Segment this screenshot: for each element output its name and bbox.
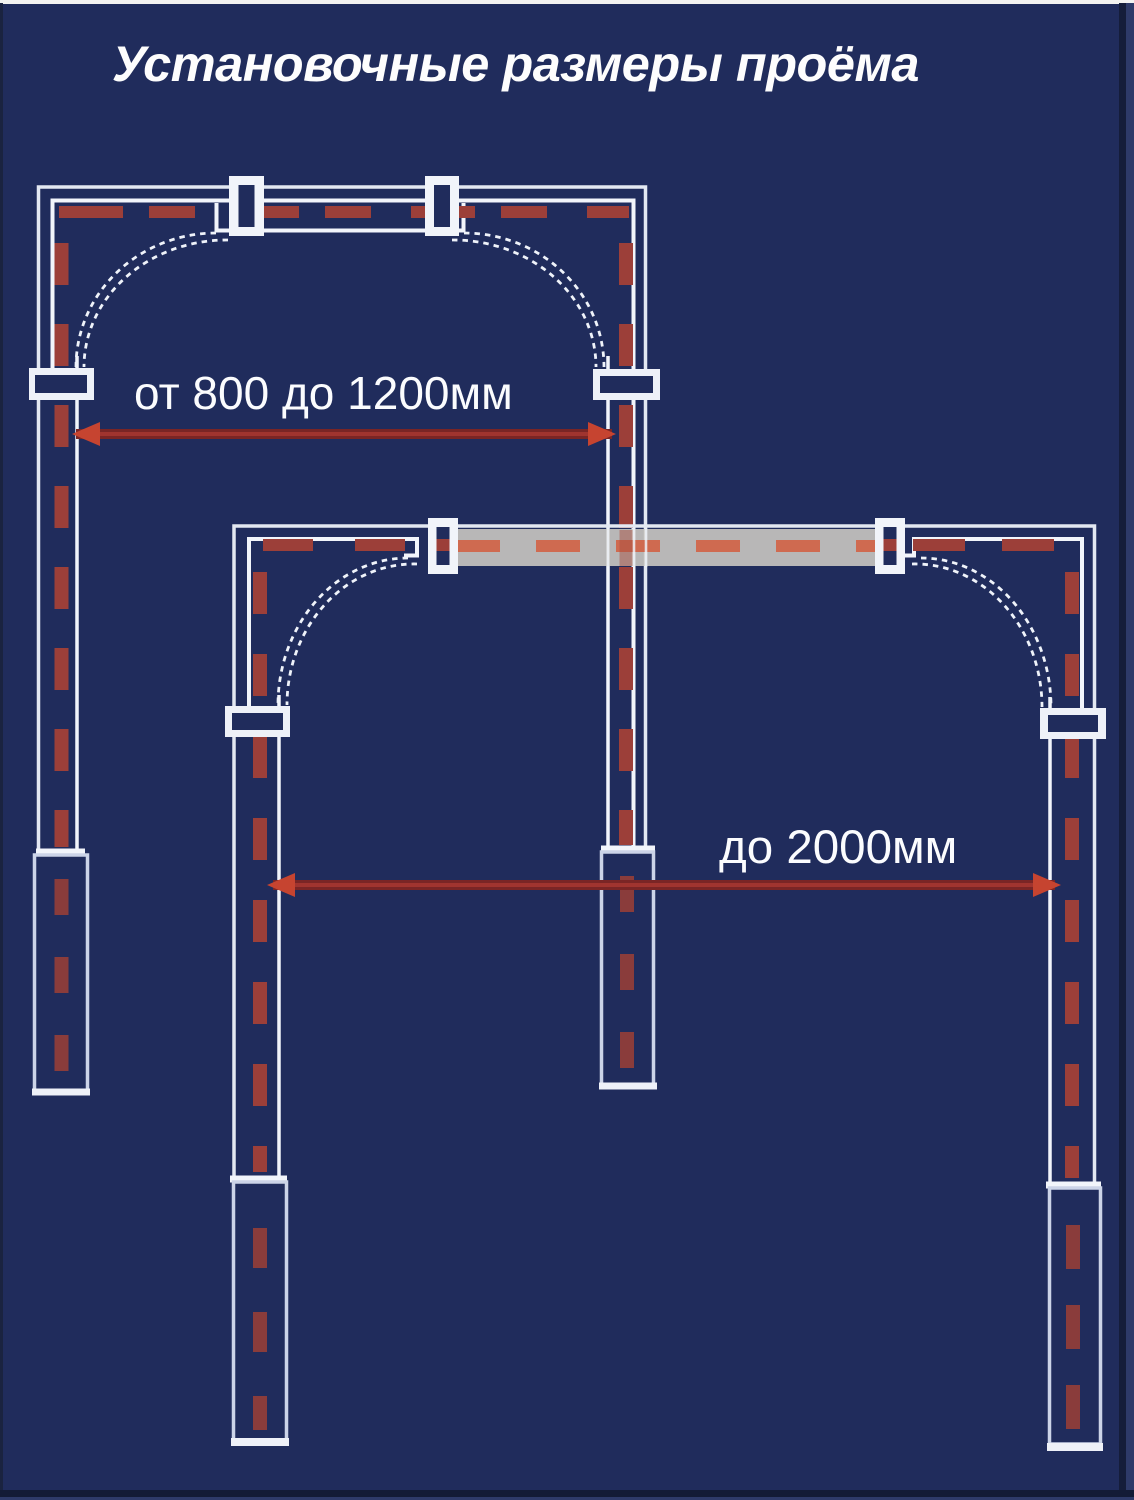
svg-text:Установочные размеры проёма: Установочные размеры проёма bbox=[112, 35, 919, 92]
svg-text:от 800 до 1200мм: от 800 до 1200мм bbox=[134, 367, 513, 419]
svg-text:до 2000мм: до 2000мм bbox=[719, 821, 957, 874]
